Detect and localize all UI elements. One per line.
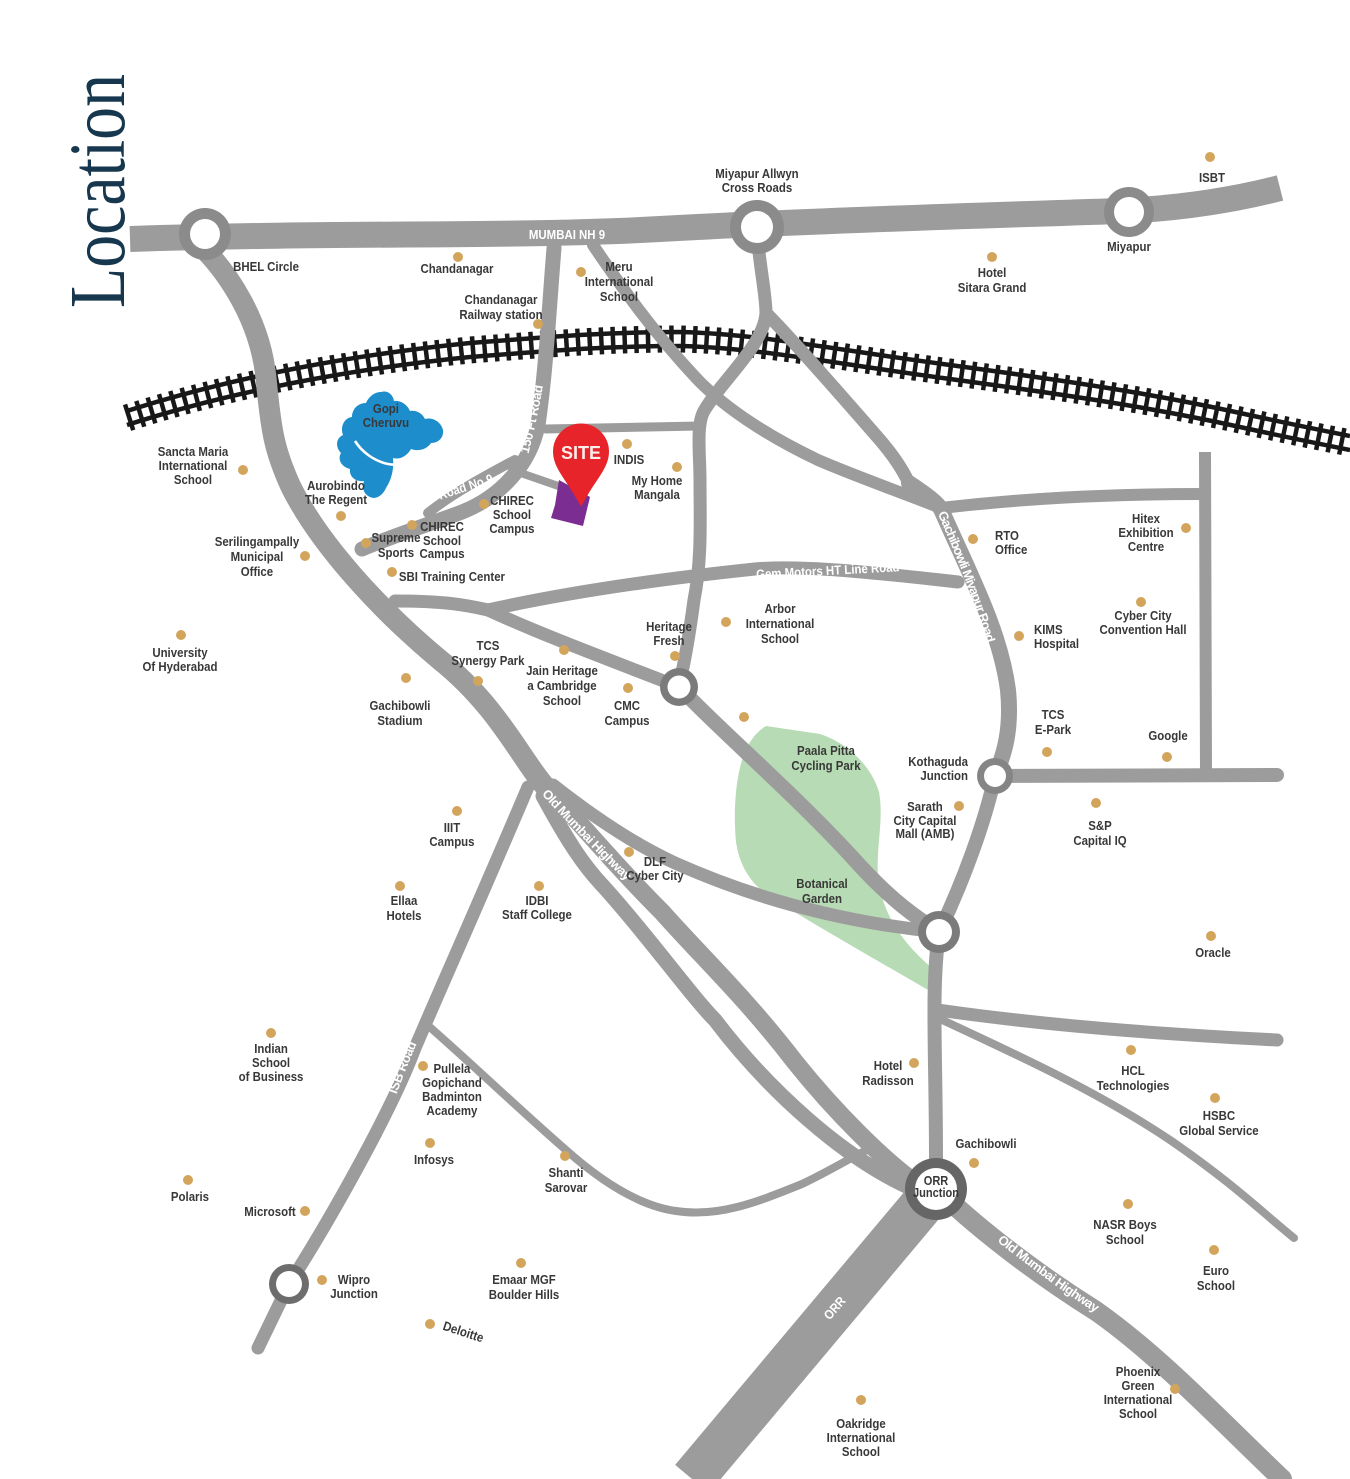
svg-text:MUMBAI NH 9: MUMBAI NH 9: [529, 227, 605, 242]
svg-text:BHEL Circle: BHEL Circle: [233, 259, 299, 274]
svg-text:GachibowliStadium: GachibowliStadium: [369, 698, 430, 728]
svg-text:Miyapur: Miyapur: [1107, 239, 1151, 254]
svg-text:Cheruvu: Cheruvu: [363, 415, 409, 430]
svg-text:ChandanagarRailway station: ChandanagarRailway station: [459, 292, 542, 322]
svg-text:Junction: Junction: [913, 1185, 959, 1200]
svg-text:Miyapur AllwynCross Roads: Miyapur AllwynCross Roads: [715, 166, 798, 195]
svg-text:CHIRECSchoolCampus: CHIRECSchoolCampus: [489, 493, 534, 536]
svg-text:Emaar MGFBoulder Hills: Emaar MGFBoulder Hills: [489, 1272, 560, 1302]
svg-text:Paala PittaCycling Park: Paala PittaCycling Park: [791, 743, 860, 773]
svg-text:UniversityOf Hyderabad: UniversityOf Hyderabad: [142, 645, 217, 674]
svg-text:My HomeMangala: My HomeMangala: [632, 473, 683, 502]
svg-text:Gopi: Gopi: [373, 401, 399, 416]
svg-text:INDIS: INDIS: [614, 452, 644, 467]
svg-text:BotanicalGarden: BotanicalGarden: [796, 876, 847, 906]
svg-text:Oracle: Oracle: [1195, 945, 1231, 960]
svg-text:SBI Training Center: SBI Training Center: [399, 569, 505, 584]
svg-text:Infosys: Infosys: [414, 1152, 454, 1167]
svg-text:CHIRECSchoolCampus: CHIRECSchoolCampus: [419, 519, 464, 561]
svg-text:Chandanagar: Chandanagar: [420, 261, 493, 276]
svg-text:SITE: SITE: [561, 443, 601, 463]
svg-text:ShantiSarovar: ShantiSarovar: [545, 1165, 588, 1195]
svg-text:Location: Location: [55, 74, 142, 308]
svg-text:Microsoft: Microsoft: [244, 1204, 295, 1219]
svg-text:AurobindoThe Regent: AurobindoThe Regent: [305, 478, 367, 507]
svg-text:SupremeSports: SupremeSports: [372, 530, 421, 560]
svg-text:Google: Google: [1148, 728, 1188, 743]
svg-text:ISBT: ISBT: [1199, 170, 1226, 185]
svg-text:Polaris: Polaris: [171, 1189, 209, 1204]
svg-text:EllaaHotels: EllaaHotels: [387, 893, 422, 923]
svg-text:Gachibowli: Gachibowli: [956, 1136, 1017, 1151]
